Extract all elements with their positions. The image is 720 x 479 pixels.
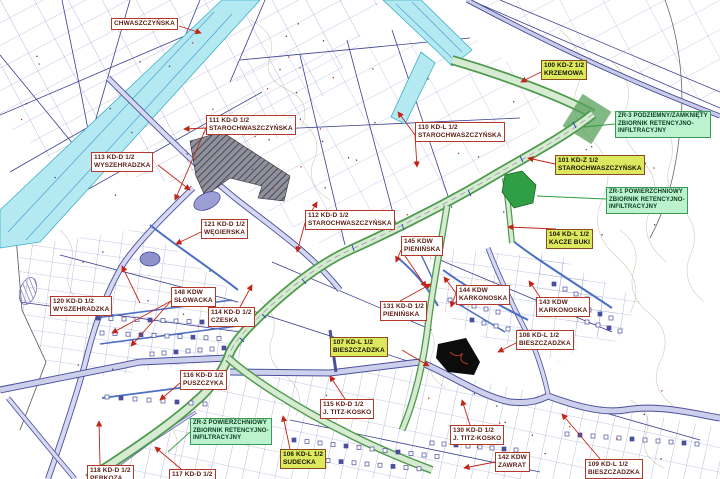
house bbox=[472, 304, 476, 308]
house bbox=[147, 398, 151, 402]
house bbox=[514, 448, 518, 452]
parcel-dot bbox=[300, 166, 301, 167]
parcel-dot bbox=[273, 188, 274, 189]
parcel-dot bbox=[532, 435, 533, 436]
house bbox=[502, 447, 506, 451]
house bbox=[435, 455, 439, 459]
house bbox=[530, 333, 534, 337]
house bbox=[563, 287, 567, 291]
parcel-dot bbox=[348, 157, 349, 158]
house bbox=[618, 329, 622, 333]
parcel-dot bbox=[198, 325, 199, 326]
parcel-dot bbox=[325, 187, 326, 188]
parcel-dot bbox=[428, 398, 429, 399]
house bbox=[617, 436, 621, 440]
house bbox=[305, 440, 309, 444]
house bbox=[203, 402, 207, 406]
house bbox=[213, 321, 217, 325]
house bbox=[344, 444, 348, 448]
parcel-dot bbox=[148, 300, 149, 301]
house bbox=[417, 467, 421, 471]
house bbox=[165, 334, 169, 338]
house bbox=[630, 437, 634, 441]
house bbox=[496, 310, 500, 314]
house bbox=[656, 439, 660, 443]
house bbox=[217, 336, 221, 340]
parcel-dot bbox=[279, 69, 280, 70]
parcel-dot bbox=[296, 92, 297, 93]
house bbox=[669, 440, 673, 444]
parcel-dot bbox=[545, 453, 546, 454]
house bbox=[352, 461, 356, 465]
house bbox=[596, 323, 600, 327]
house bbox=[198, 348, 202, 352]
parcel-dot bbox=[298, 23, 299, 24]
house bbox=[585, 297, 589, 301]
house bbox=[470, 318, 474, 322]
parcel-dot bbox=[503, 211, 504, 212]
parcel-dot bbox=[55, 177, 56, 178]
house bbox=[96, 316, 100, 320]
house bbox=[484, 307, 488, 311]
house bbox=[404, 466, 408, 470]
parcel-dot bbox=[407, 214, 408, 215]
house bbox=[200, 320, 204, 324]
house bbox=[331, 443, 335, 447]
house bbox=[442, 442, 446, 446]
parcel-dot bbox=[320, 128, 321, 129]
house bbox=[576, 304, 580, 308]
parcel-dot bbox=[267, 88, 268, 89]
house bbox=[578, 433, 582, 437]
parcel-dot bbox=[499, 423, 500, 424]
house bbox=[383, 449, 387, 453]
house bbox=[494, 324, 498, 328]
house bbox=[133, 397, 137, 401]
house bbox=[318, 441, 322, 445]
house bbox=[109, 317, 113, 321]
house bbox=[518, 330, 522, 334]
house bbox=[148, 318, 152, 322]
parcel-dot bbox=[644, 414, 645, 415]
house bbox=[326, 458, 330, 462]
parcel-dot bbox=[288, 56, 289, 57]
parcel-dot bbox=[326, 395, 327, 396]
parcel-dot bbox=[169, 66, 170, 67]
parcel-dot bbox=[21, 119, 22, 120]
parcel-dot bbox=[356, 160, 357, 161]
house bbox=[460, 301, 464, 305]
map-canvas bbox=[0, 0, 720, 479]
house bbox=[174, 319, 178, 323]
parcel-dot bbox=[208, 322, 209, 323]
house bbox=[604, 435, 608, 439]
parcel-dot bbox=[110, 108, 111, 109]
house bbox=[682, 441, 686, 445]
parcel-dot bbox=[616, 438, 617, 439]
house bbox=[585, 320, 589, 324]
parcel-dot bbox=[212, 109, 213, 110]
parcel-dot bbox=[654, 224, 655, 225]
parcel-dot bbox=[252, 169, 253, 170]
house bbox=[695, 442, 699, 446]
house bbox=[210, 347, 214, 351]
parcel-dot bbox=[478, 156, 479, 157]
house bbox=[506, 327, 510, 331]
parcel-dot bbox=[269, 139, 270, 140]
parcel-dot bbox=[322, 141, 323, 142]
house bbox=[204, 336, 208, 340]
parcel-dot bbox=[112, 369, 113, 370]
house bbox=[100, 331, 104, 335]
parcel-dot bbox=[119, 315, 120, 316]
parcel-dot bbox=[645, 163, 646, 164]
house bbox=[365, 462, 369, 466]
parcel-dot bbox=[254, 136, 255, 137]
parcel-dot bbox=[165, 321, 166, 322]
house bbox=[565, 300, 569, 304]
parcel-dot bbox=[474, 393, 475, 394]
house bbox=[552, 282, 556, 286]
parcel-dot bbox=[496, 405, 497, 406]
parcel-dot bbox=[139, 61, 140, 62]
house bbox=[139, 333, 143, 337]
house bbox=[591, 434, 595, 438]
house bbox=[448, 298, 452, 302]
house bbox=[391, 464, 395, 468]
parcel-dot bbox=[653, 167, 654, 168]
house bbox=[189, 401, 193, 405]
house bbox=[607, 326, 611, 330]
house bbox=[466, 444, 470, 448]
house bbox=[357, 446, 361, 450]
parcel-dot bbox=[36, 56, 37, 57]
house bbox=[186, 349, 190, 353]
house bbox=[409, 452, 413, 456]
house bbox=[174, 350, 178, 354]
planning-map: CHWASZCZYŃSKA100 KD-Z 1/2KRZEMOWAZR-3 PO… bbox=[0, 0, 720, 479]
parcel-dot bbox=[374, 122, 375, 123]
parcel-dot bbox=[209, 271, 210, 272]
parcel-dot bbox=[601, 234, 602, 235]
parcel-dot bbox=[477, 447, 478, 448]
parcel-dot bbox=[131, 132, 132, 133]
house bbox=[161, 399, 165, 403]
house bbox=[609, 316, 613, 320]
house bbox=[490, 446, 494, 450]
house bbox=[178, 335, 182, 339]
parcel-dot bbox=[458, 153, 459, 154]
parcel-dot bbox=[505, 422, 506, 423]
house bbox=[598, 312, 602, 316]
house bbox=[339, 460, 343, 464]
house bbox=[187, 320, 191, 324]
house bbox=[150, 352, 154, 356]
parcel-dot bbox=[661, 458, 662, 459]
parcel-dot bbox=[372, 68, 373, 69]
house bbox=[378, 463, 382, 467]
house bbox=[191, 335, 195, 339]
house bbox=[105, 395, 109, 399]
house bbox=[482, 321, 486, 325]
house bbox=[113, 332, 117, 336]
house bbox=[370, 447, 374, 451]
house bbox=[300, 456, 304, 460]
parcel-dot bbox=[586, 149, 587, 150]
parcel-dot bbox=[203, 132, 204, 133]
parcel-dot bbox=[192, 42, 193, 43]
parcel-dot bbox=[323, 40, 324, 41]
parcel-dot bbox=[300, 118, 301, 119]
house bbox=[222, 346, 226, 350]
parcel-dot bbox=[115, 195, 116, 196]
parcel-dot bbox=[196, 302, 197, 303]
parcel-dot bbox=[78, 364, 79, 365]
house bbox=[478, 445, 482, 449]
parcel-dot bbox=[569, 426, 570, 427]
house bbox=[175, 400, 179, 404]
house bbox=[574, 292, 578, 296]
parcel-dot bbox=[82, 262, 83, 263]
house bbox=[122, 317, 126, 321]
parcel-dot bbox=[26, 103, 27, 104]
house bbox=[430, 441, 434, 445]
house bbox=[119, 396, 123, 400]
house bbox=[126, 332, 130, 336]
parcel-dot bbox=[286, 36, 287, 37]
parcel-dot bbox=[591, 146, 592, 147]
parcel-dot bbox=[513, 101, 514, 102]
house bbox=[587, 308, 591, 312]
parcel-dot bbox=[183, 314, 184, 315]
pond-small bbox=[140, 252, 160, 266]
house bbox=[152, 333, 156, 337]
parcel-dot bbox=[333, 77, 334, 78]
parcel-dot bbox=[299, 67, 300, 68]
house bbox=[565, 432, 569, 436]
parcel-dot bbox=[102, 251, 103, 252]
house bbox=[396, 450, 400, 454]
house bbox=[454, 443, 458, 447]
house bbox=[135, 318, 139, 322]
house bbox=[162, 351, 166, 355]
parcel-dot bbox=[427, 78, 428, 79]
parcel-dot bbox=[632, 213, 633, 214]
parcel-dot bbox=[187, 153, 188, 154]
house bbox=[643, 438, 647, 442]
house bbox=[422, 453, 426, 457]
house bbox=[161, 319, 165, 323]
parcel-dot bbox=[39, 63, 40, 64]
house bbox=[292, 438, 296, 442]
parcel-dot bbox=[661, 390, 662, 391]
house bbox=[313, 457, 317, 461]
